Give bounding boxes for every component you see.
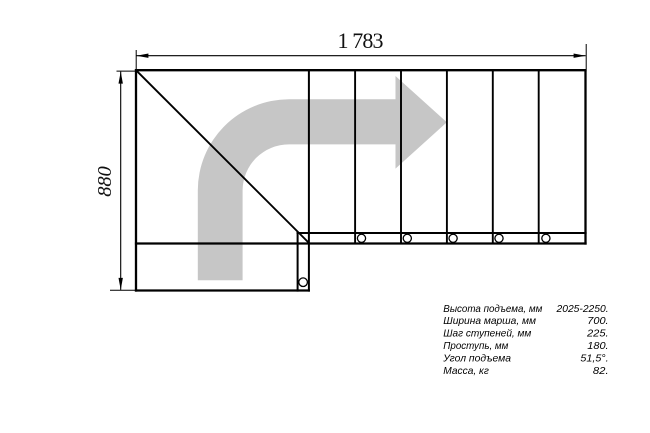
svg-text:Высота подъема, мм: Высота подъема, мм [443,304,542,315]
svg-text:180.: 180. [587,341,608,352]
svg-text:Шаг ступеней, мм: Шаг ступеней, мм [443,329,531,340]
svg-text:880: 880 [94,166,116,197]
svg-text:700.: 700. [587,316,608,327]
svg-text:Угол подъема: Угол подъема [442,353,511,364]
svg-text:Масса, кг: Масса, кг [443,366,489,377]
svg-text:225.: 225. [586,329,609,340]
svg-text:51,5°.: 51,5°. [580,353,608,364]
svg-text:82.: 82. [593,366,609,377]
svg-text:Ширина марша, мм: Ширина марша, мм [443,316,536,327]
svg-text:2025-2250.: 2025-2250. [556,304,609,315]
svg-text:Проступь, мм: Проступь, мм [443,341,508,352]
svg-text:1 783: 1 783 [338,28,384,53]
